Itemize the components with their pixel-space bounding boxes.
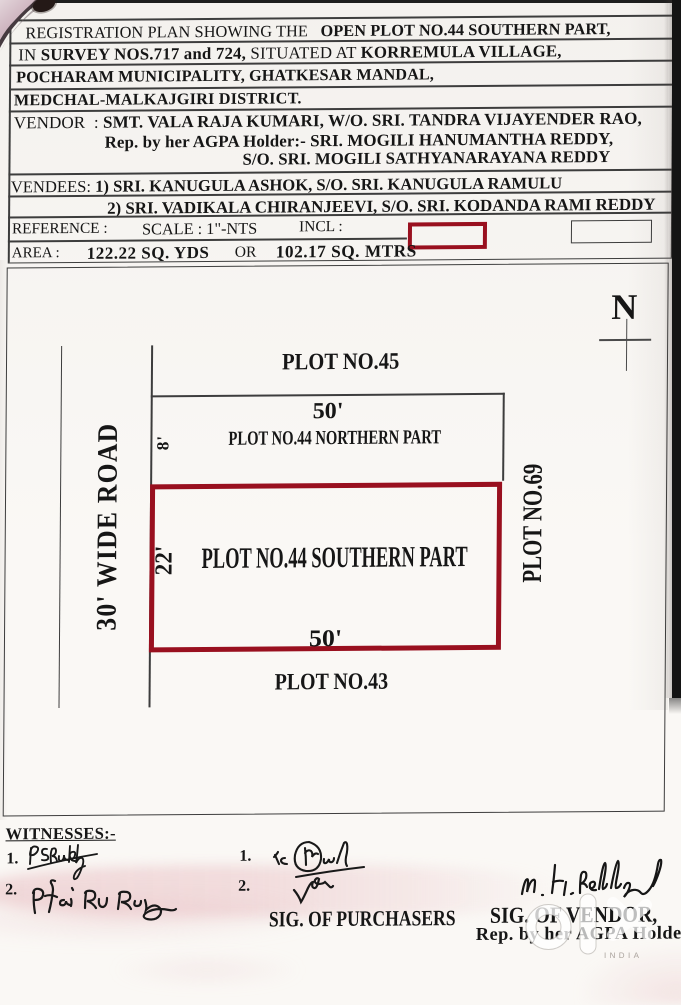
svg-text:INDIA: INDIA (604, 951, 642, 960)
